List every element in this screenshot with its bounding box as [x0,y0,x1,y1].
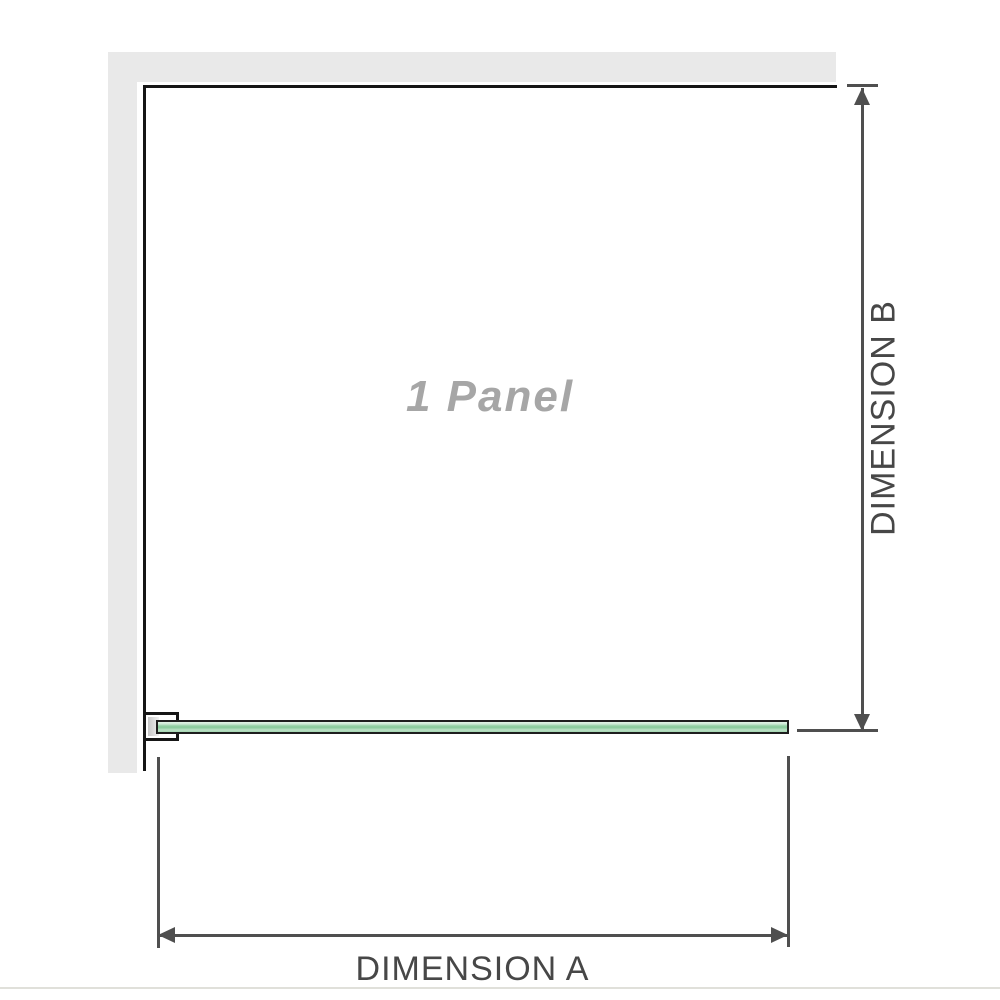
panel-dimension-diagram: 1 Panel DIMENSION B DIMENSION A [0,0,1000,1000]
dimension-b-cap-top [847,84,878,87]
page-divider [0,987,1000,989]
dimension-b-label: DIMENSION B [865,300,904,536]
dimension-a-extension-right [787,756,790,947]
panel-count-watermark: 1 Panel [143,372,837,422]
dimension-a-label: DIMENSION A [157,950,788,989]
wall-segment-left [108,52,137,773]
arrow-right-icon [771,927,788,943]
panel-outline [143,85,837,771]
arrow-up-icon [854,88,870,105]
glass-panel-bar [156,720,789,734]
wall-segment-top [108,52,836,82]
arrow-left-icon [158,927,175,943]
dimension-a-extension-left [157,757,160,948]
dimension-a-line [158,934,788,937]
arrow-down-icon [854,714,870,731]
